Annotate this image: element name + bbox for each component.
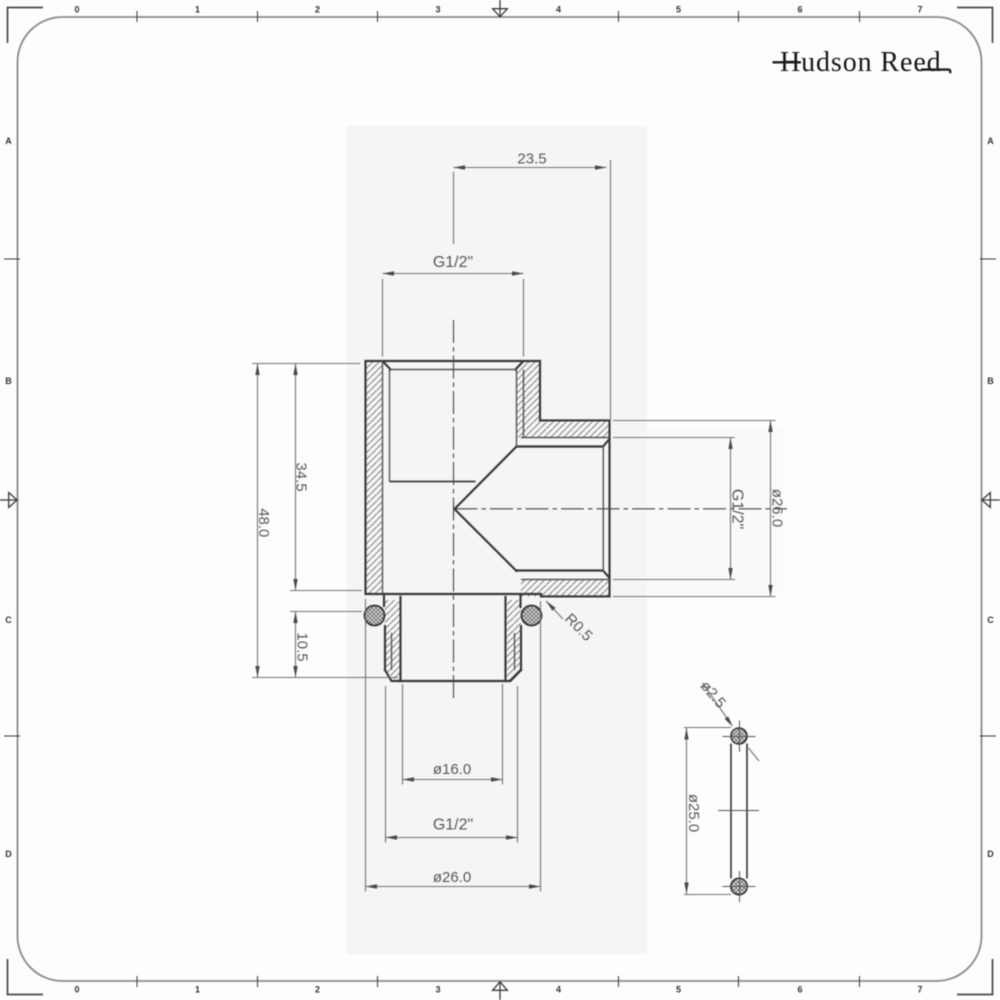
svg-text:1: 1 <box>195 5 200 15</box>
svg-text:D: D <box>5 849 12 859</box>
svg-text:0: 0 <box>74 5 79 15</box>
svg-text:C: C <box>5 615 12 625</box>
svg-text:D: D <box>987 849 994 859</box>
svg-text:5: 5 <box>676 5 681 15</box>
svg-text:A: A <box>5 136 12 146</box>
svg-text:ø26.0: ø26.0 <box>768 489 785 527</box>
svg-text:B: B <box>987 376 994 386</box>
svg-text:B: B <box>5 376 12 386</box>
svg-text:ø26.0: ø26.0 <box>433 869 471 886</box>
svg-text:3: 3 <box>435 5 440 15</box>
svg-text:6: 6 <box>797 5 802 15</box>
svg-text:2: 2 <box>315 985 320 995</box>
svg-text:5: 5 <box>676 985 681 995</box>
svg-text:23.5: 23.5 <box>517 151 546 168</box>
svg-text:ø25.0: ø25.0 <box>685 794 702 832</box>
svg-text:4: 4 <box>556 985 561 995</box>
svg-text:G1/2": G1/2" <box>433 817 473 834</box>
svg-text:ø2.5: ø2.5 <box>697 678 729 712</box>
svg-text:6: 6 <box>797 985 802 995</box>
svg-text:A: A <box>987 136 994 146</box>
svg-text:7: 7 <box>917 985 922 995</box>
svg-text:ø16.0: ø16.0 <box>433 761 471 778</box>
svg-text:G1/2": G1/2" <box>433 254 473 271</box>
svg-text:1: 1 <box>195 985 200 995</box>
svg-text:48.0: 48.0 <box>255 508 272 537</box>
svg-text:34.5: 34.5 <box>292 462 309 491</box>
svg-text:Hudson Reed: Hudson Reed <box>780 47 942 78</box>
svg-text:2: 2 <box>315 5 320 15</box>
svg-text:G1/2": G1/2" <box>729 489 746 529</box>
svg-text:10.5: 10.5 <box>293 632 310 661</box>
svg-text:3: 3 <box>435 985 440 995</box>
svg-text:C: C <box>987 615 994 625</box>
svg-text:7: 7 <box>917 5 922 15</box>
svg-text:0: 0 <box>74 985 79 995</box>
svg-text:4: 4 <box>556 5 561 15</box>
